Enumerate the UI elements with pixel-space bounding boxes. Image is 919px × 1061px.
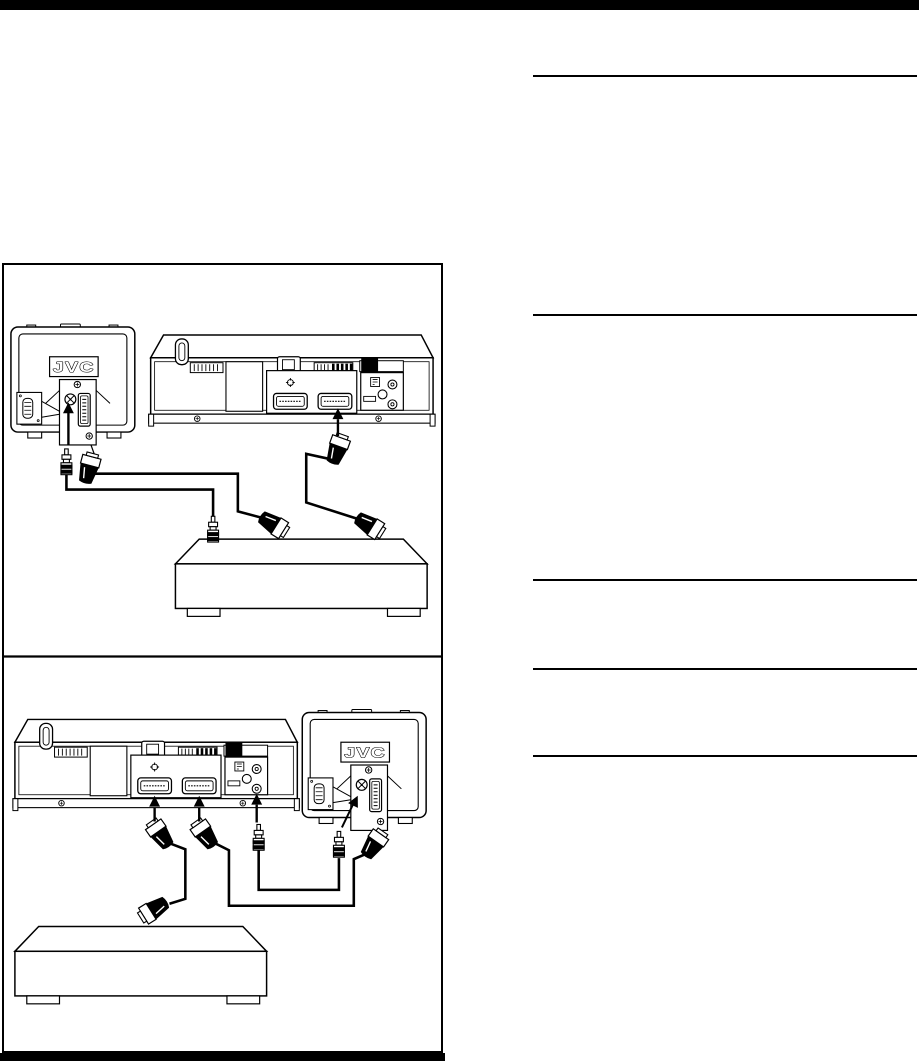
aerial-plug-icon [61,449,72,475]
scart-cable-tv [92,474,263,519]
vcr-rear-view [149,335,435,426]
connection-diagram-1 [11,324,435,616]
scart-plug-icon [352,509,388,541]
aerial-plug-icon [333,831,344,857]
text-column-rule [533,755,917,757]
scart-plug-icon [323,431,351,466]
connection-diagram-2 [13,710,426,1004]
text-column-rule [533,314,917,316]
connection-diagrams: JVC [4,265,441,1051]
scart-plug-icon [256,508,292,540]
page-bottom-rule [0,1053,445,1061]
scart-cable-av1 [165,841,186,903]
scart-plug-icon [144,816,177,852]
aerial-cable [259,846,339,890]
aerial-plug-icon [208,516,219,542]
text-column-rule [533,668,917,670]
tv-rear-view [11,324,135,445]
scart-plug-icon [76,451,102,485]
tv-rear-view [302,710,426,831]
satellite-receiver [175,539,427,616]
text-column-rule [533,579,917,581]
manual-page: JVC [0,0,919,1061]
aerial-plug-icon [253,824,264,850]
text-column-rule [533,75,917,77]
scart-plug-icon [188,816,221,852]
connection-diagrams-frame: JVC [2,263,443,1053]
scart-plug-icon [136,894,172,926]
page-top-rule [0,0,919,10]
satellite-receiver [15,927,267,1004]
